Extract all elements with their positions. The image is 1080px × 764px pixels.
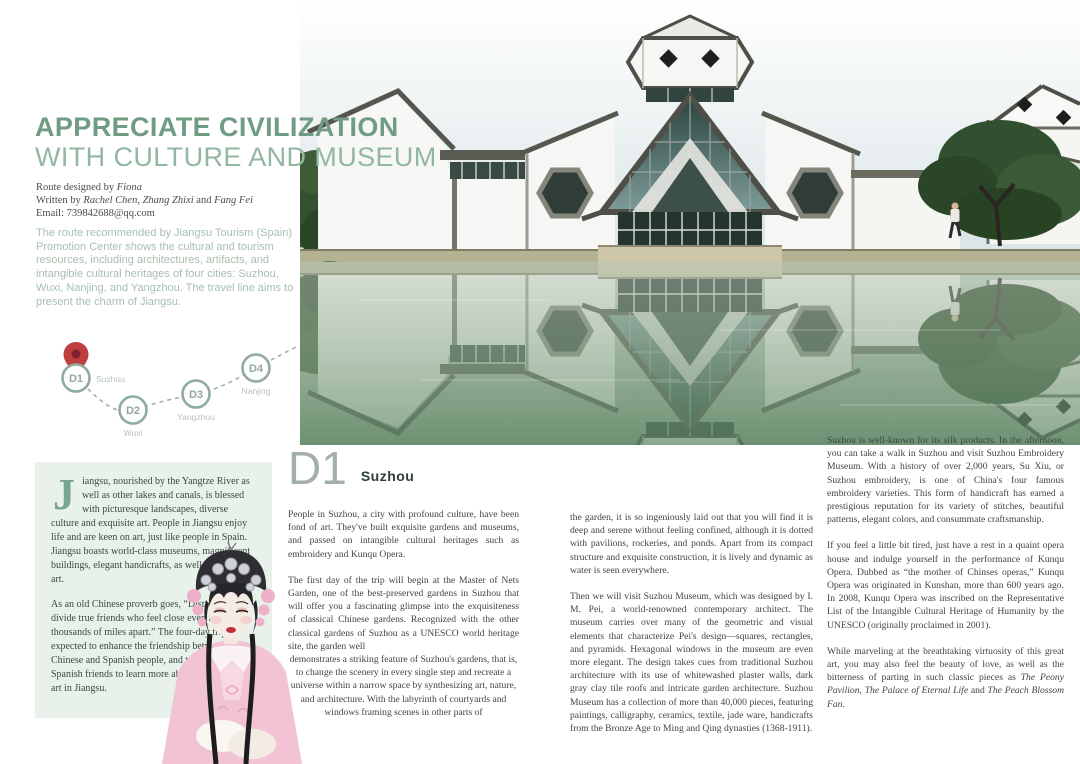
route-stop-d4: D4 Nanjing: [242, 355, 271, 397]
stop-label: Suzhou: [96, 374, 125, 384]
svg-text:D3: D3: [189, 389, 203, 401]
article-column-3: Suzhou is well-known for its silk produc…: [827, 434, 1064, 724]
paragraph: the garden, it is so ingeniously laid ou…: [570, 511, 813, 577]
page-title: APPRECIATE CIVILIZATION WITH CULTURE AND…: [35, 112, 437, 172]
paragraph: The first day of the trip will begin at …: [288, 574, 519, 653]
credit-line-email: Email: 739842688@qq.com: [36, 207, 253, 220]
stop-label: Nanjing: [242, 386, 271, 396]
stop-label: Yangzhou: [177, 412, 215, 422]
stop-label: Wuxi: [124, 428, 143, 438]
paragraph-with-titles: While marveling at the breathtaking virt…: [827, 645, 1064, 711]
route-stop-d3: D3 Yangzhou: [177, 381, 215, 423]
paragraph: Then we will visit Suzhou Museum, which …: [570, 590, 813, 735]
credit-line: Route designed by Fiona: [36, 181, 253, 194]
route-stop-d1: D1 Suzhou: [63, 365, 126, 392]
day-city: Suzhou: [361, 468, 415, 484]
paragraph-wrapped: demonstrates a striking feature of Suzho…: [288, 653, 519, 719]
svg-text:D1: D1: [69, 373, 83, 385]
svg-text:D4: D4: [249, 363, 264, 375]
credit-line: Written by Rachel Chen, Zhang Zhixi and …: [36, 194, 253, 207]
route-map: D1 Suzhou D2 Wuxi D3 Yangzhou D4 Nanjing: [28, 336, 300, 448]
paragraph: Suzhou is well-known for its silk produc…: [827, 434, 1064, 526]
svg-text:D2: D2: [126, 405, 140, 417]
day-number: D1: [288, 446, 347, 490]
museum-illustration: [300, 0, 1080, 445]
route-stop-d2: D2 Wuxi: [120, 397, 147, 439]
hexagon-window-icon: [789, 170, 841, 216]
paragraph: If you feel a little bit tired, just hav…: [827, 539, 1064, 631]
dropcap: J: [51, 475, 82, 513]
suzhou-museum-photo: [300, 0, 1080, 445]
title-line-1: APPRECIATE CIVILIZATION: [35, 112, 437, 142]
title-line-2: WITH CULTURE AND MUSEUM: [35, 142, 437, 172]
article-column-2: the garden, it is so ingeniously laid ou…: [570, 511, 813, 748]
magazine-spread: APPRECIATE CIVILIZATION WITH CULTURE AND…: [0, 0, 1080, 764]
paragraph: People in Suzhou, a city with profound c…: [288, 508, 519, 561]
article-column-1: People in Suzhou, a city with profound c…: [288, 508, 519, 732]
day-section-header: D1 Suzhou: [288, 446, 414, 490]
hexagon-window-icon: [539, 170, 591, 216]
credits: Route designed by Fiona Written by Rache…: [36, 181, 253, 220]
intro-paragraph: The route recommended by Jiangsu Tourism…: [36, 227, 304, 309]
